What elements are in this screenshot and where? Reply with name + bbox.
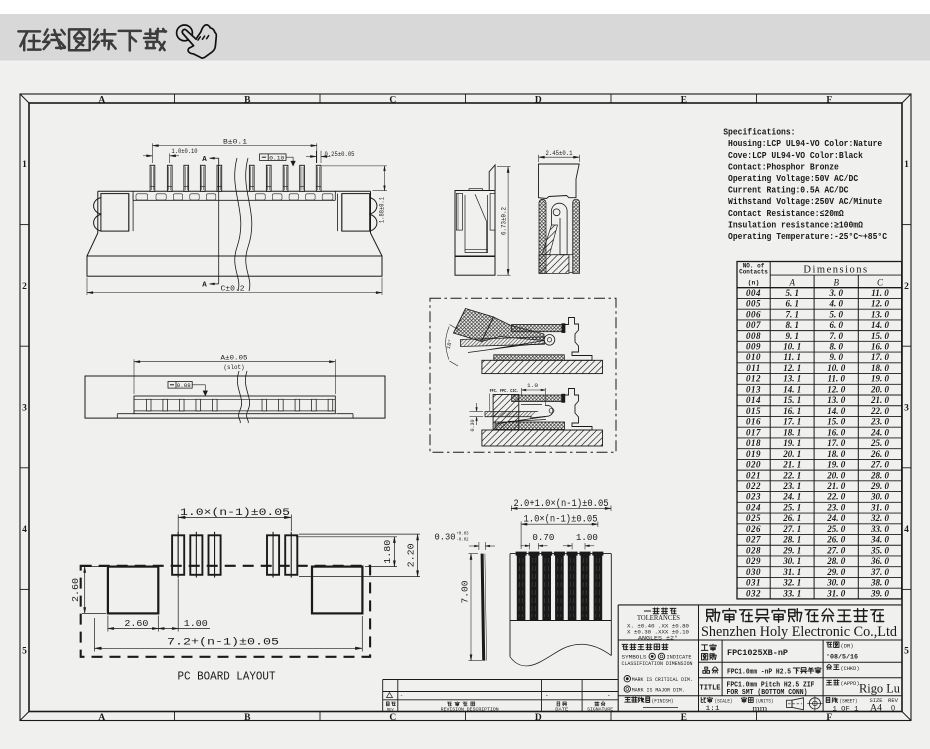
svg-text:11. 1: 11. 1 [783,352,801,362]
svg-text:B: B [244,95,251,105]
svg-text:16. 0: 16. 0 [871,341,890,351]
svg-text:13. 1: 13. 1 [783,374,801,384]
svg-text:12. 1: 12. 1 [783,363,801,373]
svg-text:22. 1: 22. 1 [782,470,801,480]
svg-text:17. 0: 17. 0 [827,438,846,448]
svg-text:0: 0 [891,703,895,712]
svg-text:A: A [788,278,795,288]
svg-text:2.20: 2.20 [406,543,417,567]
svg-text:-: - [400,693,403,699]
svg-text:37. 0: 37. 0 [870,567,890,577]
svg-text:4: 4 [904,525,909,535]
svg-text:025: 025 [746,513,761,523]
svg-text:006: 006 [746,309,761,319]
svg-text:15. 0: 15. 0 [871,331,890,341]
svg-text:14. 1: 14. 1 [783,384,801,394]
svg-text:25. 0: 25. 0 [870,438,890,448]
svg-text:017: 017 [746,427,761,437]
svg-text:12. 0: 12. 0 [871,299,890,309]
svg-text:B±0.1: B±0.1 [223,138,247,145]
svg-text:34. 0: 34. 0 [870,535,890,545]
svg-text:11. 0: 11. 0 [871,288,889,298]
svg-text:19. 0: 19. 0 [871,374,890,384]
svg-text:16. 1: 16. 1 [783,406,801,416]
svg-text:18. 1: 18. 1 [783,427,801,437]
svg-text:031: 031 [746,578,761,588]
svg-text:27. 0: 27. 0 [826,545,846,555]
svg-text:7. 1: 7. 1 [785,309,799,319]
svg-text:19. 0: 19. 0 [827,460,846,470]
svg-text:A: A [98,713,105,723]
svg-text:Cove:LCP UL94-VO Color:Black: Cove:LCP UL94-VO Color:Black [728,151,863,161]
svg-text:029: 029 [746,556,761,566]
svg-text:C: C [389,713,396,723]
svg-text:20. 0: 20. 0 [870,384,890,394]
svg-text:023: 023 [746,492,761,502]
svg-text:C±0.2: C±0.2 [221,285,245,293]
svg-text:28. 0: 28. 0 [870,470,890,480]
svg-text:19. 1: 19. 1 [783,438,801,448]
svg-text:MARK IS MAJOR DIM.: MARK IS MAJOR DIM. [632,686,685,693]
svg-text:(slot): (slot) [224,364,245,371]
svg-text:21. 0: 21. 0 [826,481,846,491]
svg-text:024: 024 [746,502,761,512]
svg-text:32. 1: 32. 1 [782,578,801,588]
svg-text:FPC1.0mm -nP H2.5: FPC1.0mm -nP H2.5 [727,669,791,677]
svg-text:5. 1: 5. 1 [785,288,799,298]
svg-text:C: C [877,278,884,288]
svg-text:1.00: 1.00 [184,618,208,629]
svg-text:021: 021 [746,470,761,480]
svg-text:+0.03: +0.03 [457,531,469,537]
svg-text:28. 0: 28. 0 [826,556,846,566]
svg-text:8. 1: 8. 1 [785,320,799,330]
svg-text:028: 028 [746,545,761,555]
svg-text:8. 0: 8. 0 [829,341,843,351]
svg-text:007: 007 [746,320,761,330]
svg-text:1.88±0.1: 1.88±0.1 [379,197,386,223]
svg-text:29. 0: 29. 0 [870,481,890,491]
svg-text:0.25±0.05: 0.25±0.05 [325,151,355,158]
svg-text:1:1: 1:1 [706,705,720,713]
svg-text:(APPD): (APPD) [841,681,860,687]
svg-text:FFC. FPC. CIC.: FFC. FPC. CIC. [490,388,519,394]
svg-text:DATE: DATE [555,708,569,712]
svg-text:1.00: 1.00 [576,533,598,543]
svg-text:16. 0: 16. 0 [827,427,846,437]
svg-text:31. 0: 31. 0 [826,588,846,598]
svg-text:14. 0: 14. 0 [871,320,890,330]
svg-text:29. 0: 29. 0 [826,567,846,577]
svg-text:016: 016 [746,417,761,427]
svg-text:28. 1: 28. 1 [782,535,801,545]
svg-text:24. 0: 24. 0 [826,513,846,523]
svg-text:Contacts: Contacts [739,269,768,276]
svg-text:21. 0: 21. 0 [870,395,890,405]
svg-text:2.0+1.0×(n-1)±0.05: 2.0+1.0×(n-1)±0.05 [514,498,609,509]
svg-text:15. 0: 15. 0 [827,417,846,427]
svg-text:011: 011 [746,363,761,373]
svg-text:A: A [98,95,105,105]
svg-text:E: E [681,713,687,723]
svg-text:030: 030 [746,567,761,577]
svg-text:2: 2 [22,282,27,292]
svg-text:21. 1: 21. 1 [782,460,801,470]
svg-text:29. 1: 29. 1 [782,545,801,555]
svg-text:0.30: 0.30 [470,420,476,432]
svg-text:(DR): (DR) [841,643,854,649]
svg-text:D: D [535,95,542,105]
svg-text:10. 0: 10. 0 [827,363,846,373]
svg-text:A: A [202,156,207,164]
svg-text:23. 0: 23. 0 [870,417,890,427]
svg-text:ANGLES ±2°: ANGLES ±2° [638,635,678,641]
svg-text:Current Rating:0.5A AC/DC: Current Rating:0.5A AC/DC [728,186,849,196]
svg-text:E: E [681,95,687,105]
svg-text:010: 010 [746,352,761,362]
svg-text:9. 1: 9. 1 [785,331,799,341]
svg-text:(SCALE): (SCALE) [715,699,733,705]
svg-text:FOR SMT (BOTTOM CONN): FOR SMT (BOTTOM CONN) [727,689,808,697]
svg-text:32. 0: 32. 0 [870,513,890,523]
svg-text:(n): (n) [748,280,760,287]
svg-text:Operating Voltage:50V AC/DC: Operating Voltage:50V AC/DC [728,174,859,184]
svg-text:25. 0: 25. 0 [826,524,846,534]
svg-text:11. 0: 11. 0 [827,374,845,384]
svg-text:36. 0: 36. 0 [870,556,890,566]
svg-text:022: 022 [746,481,761,491]
svg-text:005: 005 [746,299,761,309]
svg-text:X. ±0.40 .XX ±0.80: X. ±0.40 .XX ±0.80 [627,623,689,629]
svg-text:Contact:Phosphor Bronze: Contact:Phosphor Bronze [728,162,839,172]
svg-text:14. 0: 14. 0 [827,406,846,416]
svg-text:-0.02: -0.02 [457,537,469,543]
svg-text:23. 1: 23. 1 [782,481,801,491]
svg-text:17. 1: 17. 1 [783,417,801,427]
svg-text:FPC1025XB-nP: FPC1025XB-nP [727,650,788,658]
svg-text:24. 1: 24. 1 [782,492,801,502]
svg-text:0.08: 0.08 [177,382,191,389]
svg-text:13. 0: 13. 0 [827,395,846,405]
svg-text:15. 1: 15. 1 [783,395,801,405]
svg-text:B: B [833,278,839,288]
svg-text:Insulation resistance:≥100mΩ: Insulation resistance:≥100mΩ [728,220,863,230]
svg-text:35. 0: 35. 0 [870,545,890,555]
svg-text:20. 1: 20. 1 [782,449,801,459]
svg-text:012: 012 [746,374,761,384]
svg-text:27. 1: 27. 1 [782,524,801,534]
svg-text:032: 032 [746,588,761,598]
svg-text:26. 1: 26. 1 [782,513,801,523]
svg-text:38. 0: 38. 0 [870,578,890,588]
svg-text:1 OF 1: 1 OF 1 [833,705,859,713]
svg-text:Rigo Lu: Rigo Lu [859,681,900,696]
svg-text:0.10: 0.10 [269,154,285,161]
svg-text:CLASSIFICATION DIMENSION: CLASSIFICATION DIMENSION [622,660,693,667]
svg-text:-: - [607,692,611,699]
svg-text:014: 014 [746,395,761,405]
svg-text:1.0±0.10: 1.0±0.10 [172,148,198,156]
svg-text:20. 0: 20. 0 [826,470,846,480]
svg-text:23. 0: 23. 0 [826,502,846,512]
svg-text:C: C [389,95,396,105]
svg-text:(SHEET): (SHEET) [840,699,858,705]
svg-text:Specifications:: Specifications: [723,128,795,138]
svg-text:30. 1: 30. 1 [782,556,801,566]
svg-text:18. 0: 18. 0 [871,363,890,373]
svg-text:6. 1: 6. 1 [785,299,799,309]
svg-text:1: 1 [904,160,909,170]
svg-text:24. 0: 24. 0 [870,427,890,437]
svg-text:REV: REV [387,709,395,713]
svg-text:6.73±0.2: 6.73±0.2 [501,207,508,235]
svg-text:A4: A4 [870,703,883,713]
svg-text:SIGNATURE: SIGNATURE [587,708,614,712]
svg-text:39. 0: 39. 0 [870,588,890,598]
svg-text:020: 020 [746,460,761,470]
svg-text:TITLE: TITLE [700,685,721,693]
svg-text:31. 1: 31. 1 [782,567,801,577]
svg-text:REVISION DESCRIPTION: REVISION DESCRIPTION [441,708,500,712]
svg-text:0.70: 0.70 [532,533,554,543]
svg-text:33. 0: 33. 0 [870,524,890,534]
svg-text:22. 0: 22. 0 [826,492,846,502]
svg-text:2.60: 2.60 [70,578,81,602]
svg-text:26. 0: 26. 0 [826,535,846,545]
svg-text:Operating Temperature:-25°C~+8: Operating Temperature:-25°C~+85°C [728,232,888,242]
svg-text:13. 0: 13. 0 [871,309,890,319]
svg-text:7.2+(n-1)±0.05: 7.2+(n-1)±0.05 [167,637,279,649]
svg-text:1.0×(n-1)±0.05: 1.0×(n-1)±0.05 [524,514,598,525]
svg-text:5: 5 [22,647,27,657]
svg-text:5. 0: 5. 0 [829,309,843,319]
svg-text:A±0.05: A±0.05 [221,354,248,362]
svg-text:008: 008 [746,331,761,341]
svg-text:3: 3 [904,403,909,413]
svg-text:6. 0: 6. 0 [829,320,843,330]
svg-text:F: F [826,95,832,105]
svg-text:1.0×(n-1)±0.05: 1.0×(n-1)±0.05 [180,507,290,519]
svg-text:31. 0: 31. 0 [870,502,890,512]
svg-text:1: 1 [22,160,27,170]
svg-text:D: D [535,713,542,723]
svg-text:019: 019 [746,449,761,459]
svg-text:PC BOARD LAYOUT: PC BOARD LAYOUT [178,671,276,684]
svg-text:Housing:LCP UL94-VO Color:Natu: Housing:LCP UL94-VO Color:Nature [728,139,882,149]
svg-text:18. 0: 18. 0 [827,449,846,459]
svg-text:Contact Resistance:≤20mΩ: Contact Resistance:≤20mΩ [728,209,844,219]
svg-text:Dimensions: Dimensions [803,264,868,275]
svg-text:027: 027 [746,535,761,545]
svg-text:TOLERANCES: TOLERANCES [637,615,680,622]
svg-text:B: B [244,713,251,723]
svg-text:7.00: 7.00 [460,581,470,604]
svg-text:Shenzhen Holy Electronic Co.,L: Shenzhen Holy Electronic Co.,Ltd [701,624,898,640]
svg-text:Withstand Voltage:250V AC/Minu: Withstand Voltage:250V AC/Minute [728,197,882,207]
svg-text:2.45±0.1: 2.45±0.1 [546,150,573,157]
svg-text:3. 0: 3. 0 [828,288,843,298]
svg-text:2: 2 [904,282,909,292]
svg-text:013: 013 [746,384,761,394]
svg-text:'08/5/16: '08/5/16 [826,654,858,661]
svg-text:25. 1: 25. 1 [782,502,801,512]
svg-text:22. 0: 22. 0 [870,406,890,416]
svg-text:26. 0: 26. 0 [870,449,890,459]
svg-text:1.80: 1.80 [382,539,393,563]
svg-text:(FINISH): (FINISH) [652,697,674,704]
svg-text:4: 4 [22,525,27,535]
svg-text:-: - [545,692,549,699]
svg-text:A: A [202,282,207,290]
svg-text:(CHKD): (CHKD) [841,666,860,672]
svg-text:17. 0: 17. 0 [871,352,890,362]
svg-text:4. 0: 4. 0 [828,299,843,309]
svg-text:3: 3 [22,403,27,413]
svg-text:12. 0: 12. 0 [827,384,846,394]
svg-text:2.60: 2.60 [124,618,148,629]
svg-text:1.0: 1.0 [527,383,538,389]
svg-text:7. 0: 7. 0 [829,331,843,341]
svg-text:mm: mm [752,703,767,712]
svg-text:018: 018 [746,438,761,448]
svg-text:F: F [826,713,832,723]
svg-text:10. 1: 10. 1 [783,341,801,351]
svg-text:MARK IS CRITICAL DIM.: MARK IS CRITICAL DIM. [632,676,693,683]
svg-text:9. 0: 9. 0 [829,352,843,362]
svg-text:015: 015 [746,406,761,416]
svg-text:27. 0: 27. 0 [870,460,890,470]
svg-text:004: 004 [746,288,761,298]
svg-text:0.30: 0.30 [435,532,456,543]
svg-text:30. 0: 30. 0 [826,578,846,588]
svg-text:33. 1: 33. 1 [782,588,801,598]
svg-text:5: 5 [904,647,909,657]
svg-text:30. 0: 30. 0 [870,492,890,502]
svg-text:009: 009 [746,341,761,351]
svg-text:026: 026 [746,524,761,534]
